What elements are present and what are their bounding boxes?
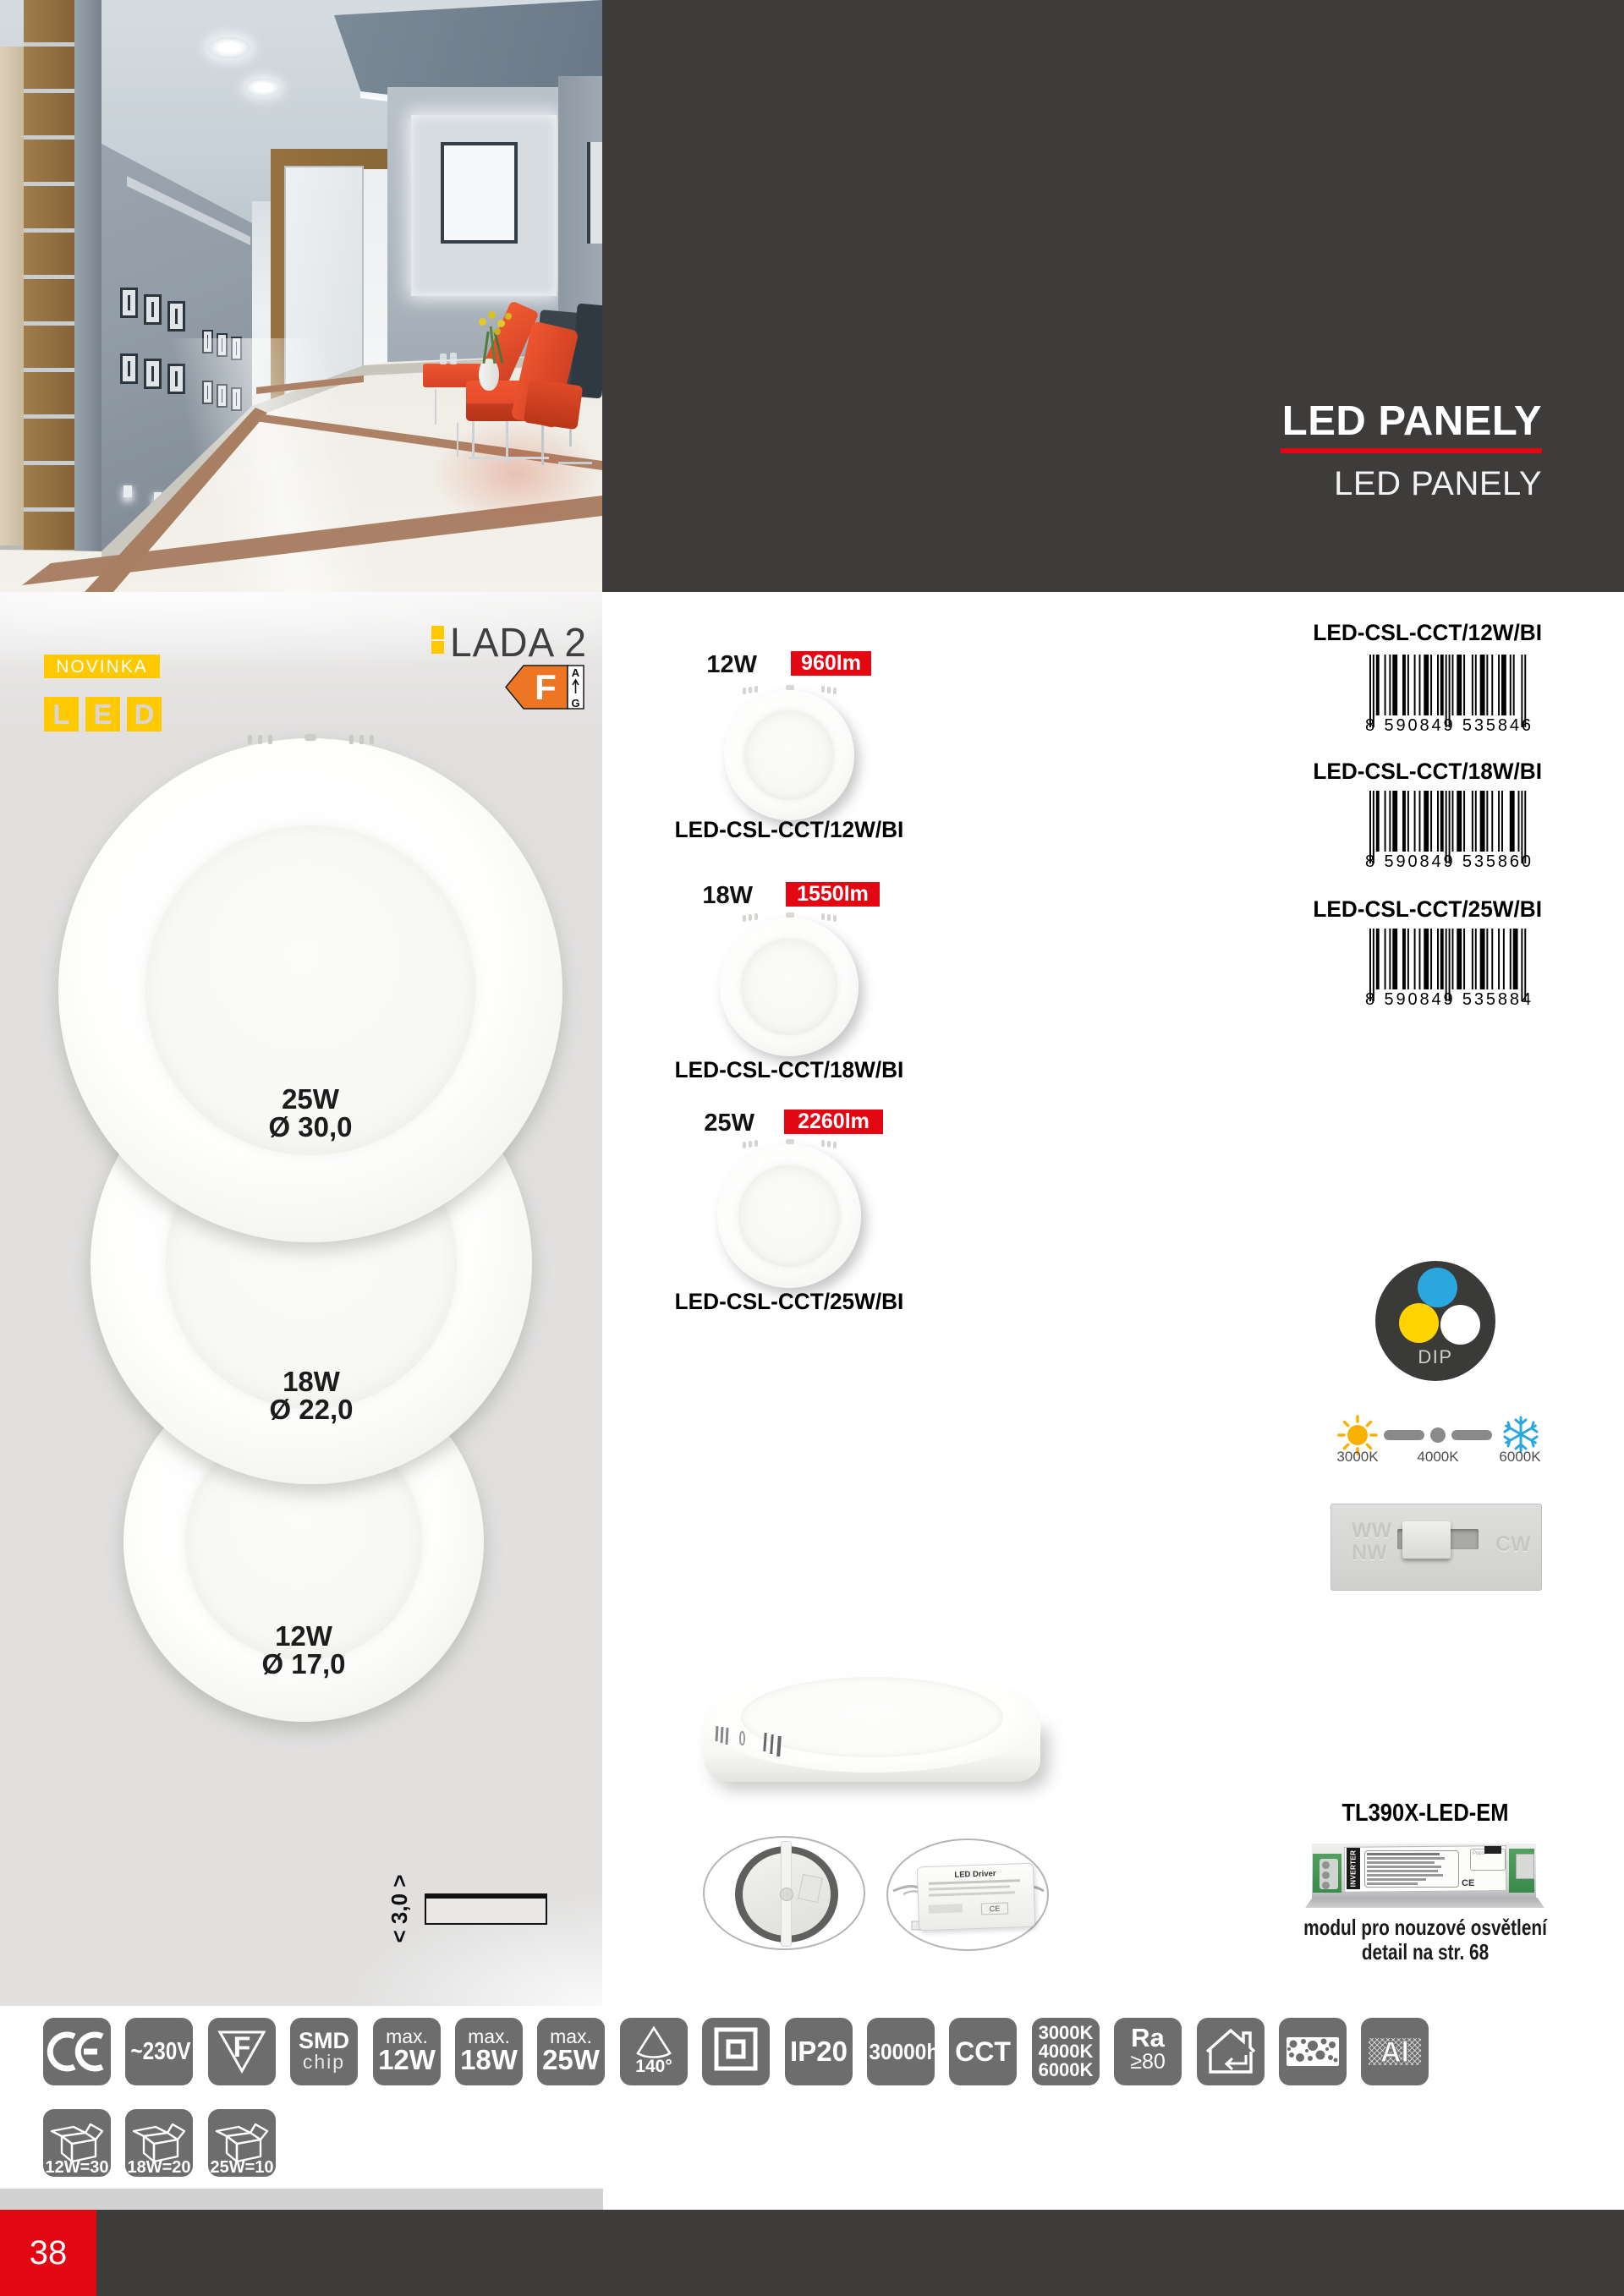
svg-text:Al: Al (1380, 2036, 1409, 2069)
svg-text:140°: 140° (635, 2057, 672, 2076)
svg-text:A: A (572, 666, 580, 679)
svg-text:12W=30: 12W=30 (45, 2158, 108, 2177)
svg-text:F: F (535, 667, 557, 707)
svg-text:F: F (233, 2031, 251, 2063)
svg-text:G: G (571, 697, 579, 710)
svg-text:8 590849 535846: 8 590849 535846 (1365, 716, 1531, 735)
svg-text:18W=20: 18W=20 (127, 2158, 190, 2177)
svg-text:8 590849 535884: 8 590849 535884 (1365, 990, 1531, 1009)
svg-text:8 590849 535860: 8 590849 535860 (1365, 852, 1531, 871)
svg-text:25W=10: 25W=10 (210, 2158, 273, 2177)
